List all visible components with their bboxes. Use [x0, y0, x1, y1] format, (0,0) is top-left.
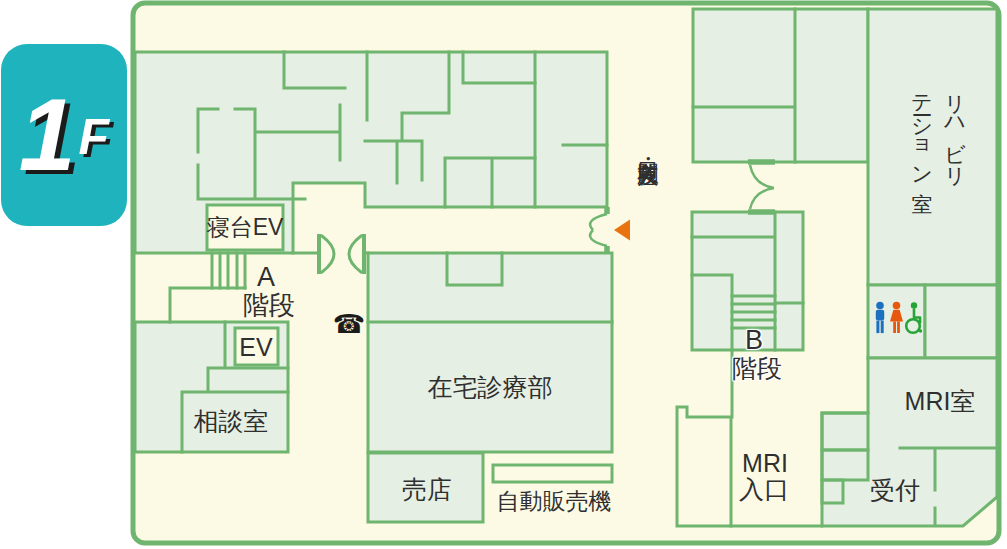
bed-elevator-label: 寝台EV	[207, 216, 284, 239]
reception-label: 受付	[870, 478, 920, 503]
stairs-b-letter-label: B	[745, 327, 763, 354]
mri-room-label: MRI室	[905, 389, 976, 414]
phone-icon: ☎	[333, 311, 365, 337]
rehabilitation-room-label: リハビリ テーション室	[905, 80, 971, 176]
floor-map: 寝台EV A 階段 EV 相談室 在宅診療部 売店 自動販売機 B 階段 MRI…	[130, 0, 1007, 549]
room-home-care	[368, 253, 612, 452]
consultation-room-label: 相談室	[194, 409, 269, 434]
vending-machine-box	[493, 465, 612, 482]
room-notched-south	[677, 407, 731, 526]
stairs-b-word-label: 階段	[732, 356, 782, 381]
stairs-a-letter-label: A	[257, 264, 275, 291]
elevator-label: EV	[239, 335, 272, 360]
floor-number: 1	[19, 84, 76, 186]
vending-machine-label: 自動販売機	[497, 490, 612, 513]
floor-suffix: F	[79, 112, 110, 162]
floor-badge: 1 F	[1, 44, 127, 226]
room-east-small	[925, 285, 997, 358]
room-block-north-middle	[693, 9, 868, 162]
stairs-a-word-label: 階段	[243, 292, 295, 318]
mri-entrance-label-line2: 入口	[739, 477, 789, 502]
mri-entrance-label-line1: MRI	[742, 451, 788, 476]
shop-label: 売店	[402, 477, 452, 502]
floor-map-page: 1 F	[0, 0, 1007, 549]
home-care-label: 在宅診療部	[428, 375, 553, 400]
